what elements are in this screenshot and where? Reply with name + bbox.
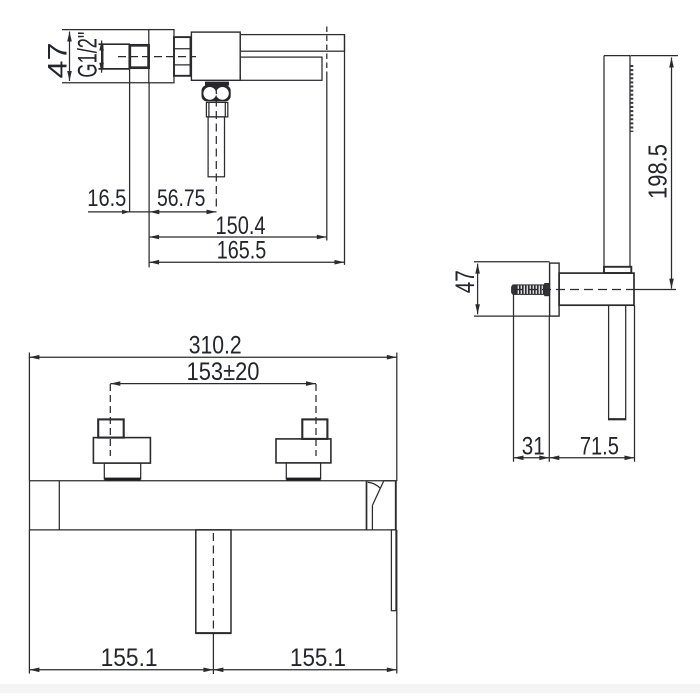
svg-text:16.5: 16.5: [87, 185, 126, 212]
svg-text:47: 47: [450, 270, 480, 293]
svg-text:G1/2": G1/2": [73, 32, 103, 78]
svg-text:47: 47: [43, 43, 73, 79]
svg-text:165.5: 165.5: [217, 237, 267, 265]
svg-text:155.1: 155.1: [290, 644, 346, 672]
svg-text:71.5: 71.5: [580, 432, 619, 460]
svg-text:310.2: 310.2: [189, 331, 242, 359]
svg-text:155.1: 155.1: [101, 644, 158, 672]
svg-text:56.75: 56.75: [157, 185, 206, 212]
svg-text:31: 31: [522, 432, 545, 460]
svg-text:153±20: 153±20: [187, 358, 260, 386]
svg-text:198.5: 198.5: [643, 144, 673, 199]
